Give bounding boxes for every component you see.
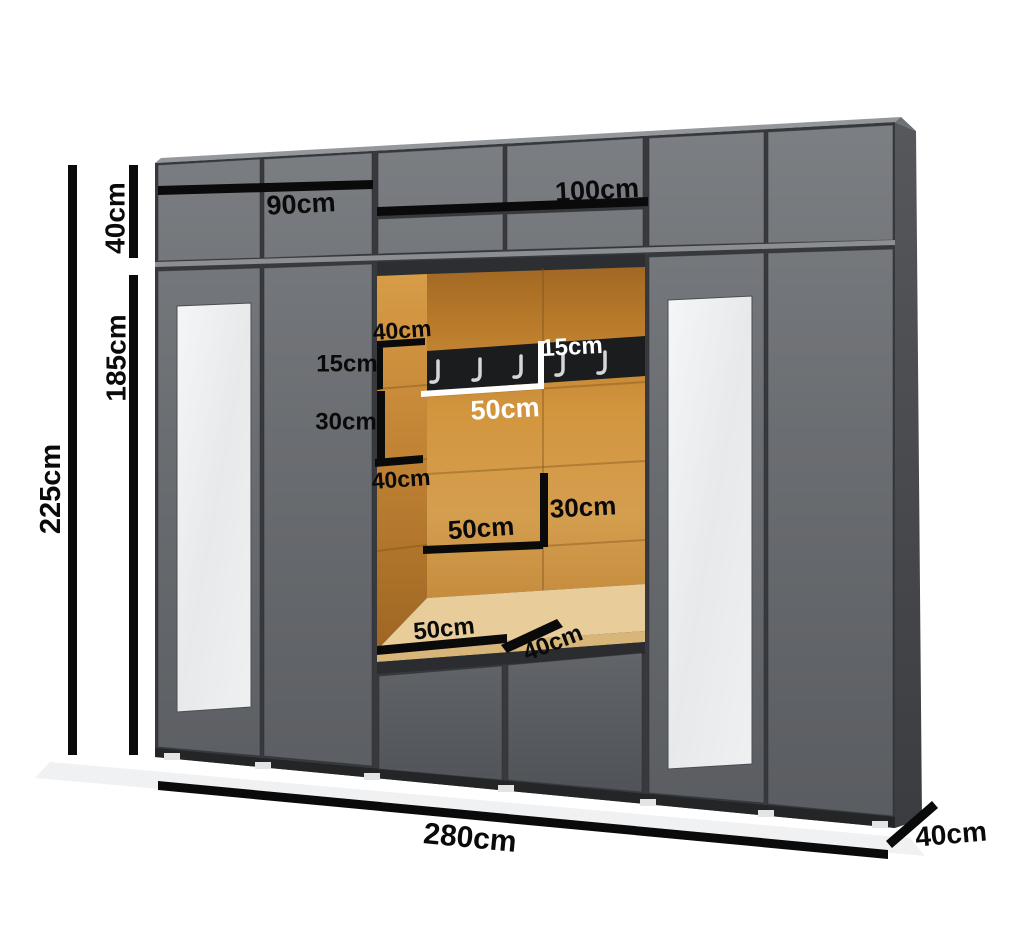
dim-label-left-width: 90cm: [266, 187, 337, 221]
dim-label-upper-height: 40cm: [100, 182, 131, 254]
top-cabinet-door-middle-1-lower: [378, 214, 503, 254]
tall-door-right-plain: [768, 249, 893, 816]
dim-bracket-shelf-spacing-small: [377, 347, 383, 390]
dim-label-rack-width: 50cm: [470, 392, 541, 426]
cabinet-foot: [640, 799, 656, 806]
dim-label-panel-width: 50cm: [447, 511, 515, 546]
drawer-right: [508, 653, 642, 792]
dim-label-rack-height: 15cm: [541, 332, 604, 362]
dim-label-main-height: 185cm: [101, 314, 132, 401]
cabinet-foot: [872, 821, 888, 828]
cabinet-foot: [164, 753, 180, 760]
dim-bracket-panel-height: [540, 473, 548, 547]
dim-bracket-shelf-spacing-large: [377, 391, 385, 464]
top-cabinet-door-middle-2-lower: [507, 209, 643, 250]
top-cabinet-door-right-2: [768, 125, 893, 243]
top-cabinet-door-right-1: [649, 132, 764, 246]
cabinet-side-panel: [895, 122, 922, 828]
dim-label-total-width: 280cm: [422, 817, 518, 859]
dim-label-depth: 40cm: [914, 815, 988, 852]
dim-label-shelf-spacing-large: 30cm: [315, 409, 376, 436]
cabinet-foot: [498, 785, 514, 792]
dim-label-niche-mid-shelf: 40cm: [371, 464, 431, 494]
mirror-right: [668, 296, 752, 769]
dim-label-center-width: 100cm: [554, 173, 640, 207]
dim-label-niche-top-shelf: 40cm: [372, 315, 432, 345]
mirror-left: [177, 303, 251, 712]
cabinet-foot: [255, 762, 271, 769]
cabinet-foot: [364, 773, 380, 780]
drawer-left: [379, 666, 502, 780]
cabinet-foot: [758, 810, 774, 817]
dim-label-panel-height: 30cm: [549, 490, 617, 523]
dim-label-shelf-spacing-small: 15cm: [316, 351, 377, 378]
dim-label-total-height: 225cm: [35, 444, 67, 534]
wardrobe-dimension-diagram: 225cm 40cm 185cm 90cm 100cm 40cm 15cm 30…: [0, 0, 1024, 941]
dim-line-total-height: [68, 165, 77, 755]
top-cabinet-door-left-1: [158, 159, 260, 261]
tall-door-left-plain: [264, 264, 372, 766]
